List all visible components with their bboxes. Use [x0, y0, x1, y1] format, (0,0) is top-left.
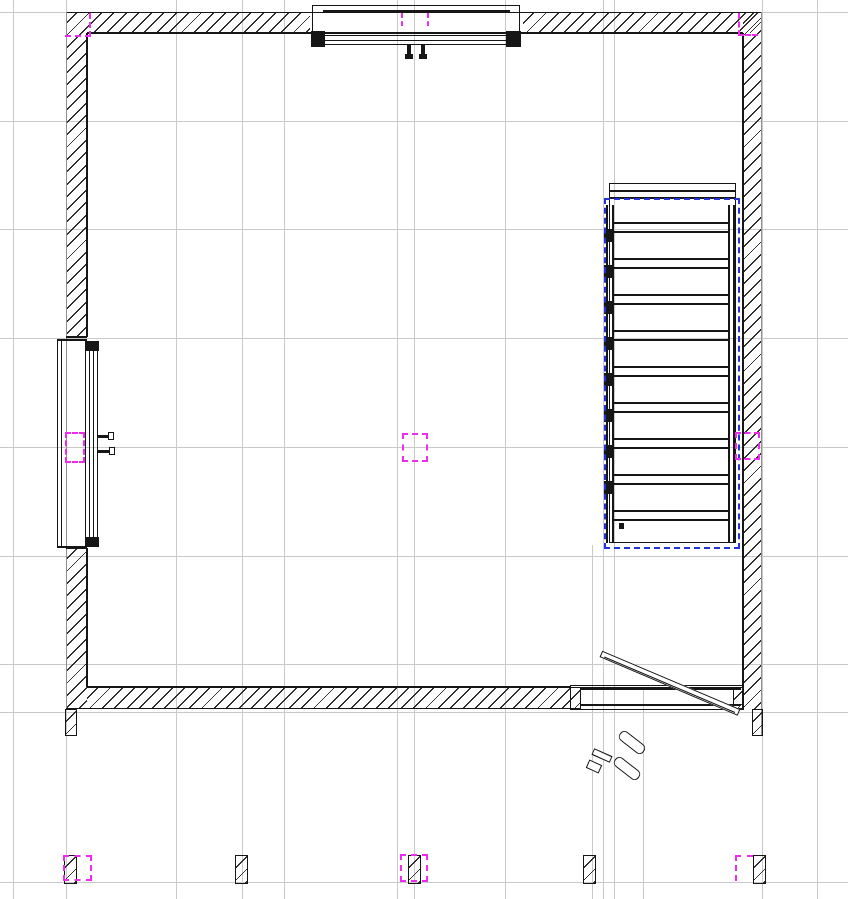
column[interactable] — [584, 856, 595, 883]
window-top-cap-left — [311, 31, 325, 47]
zone-boundary[interactable] — [604, 198, 740, 549]
window-left-handle-upper-foot — [108, 432, 114, 440]
selection-hotspot[interactable] — [427, 13, 429, 26]
wall-stub[interactable] — [753, 710, 762, 735]
door-jamb-left — [571, 688, 580, 708]
window-left-frame-line-1 — [89, 343, 90, 545]
column[interactable] — [236, 856, 247, 883]
window-left-frame-line-2 — [93, 343, 94, 545]
grid-line-horizontal — [0, 121, 848, 122]
wall-edge-right-outer — [761, 12, 762, 735]
grid-line-vertical — [505, 0, 506, 899]
wall-top-right-segment[interactable] — [523, 12, 762, 33]
selection-hotspot[interactable] — [401, 13, 403, 26]
grid-line-vertical — [242, 0, 243, 899]
wall-top-left-segment[interactable] — [66, 12, 310, 33]
wall-edge-left-inner-lower — [86, 548, 88, 687]
window-top-glass-line — [323, 10, 510, 13]
wall-right[interactable] — [743, 12, 762, 710]
wall-opening-edge-left-top — [66, 336, 87, 338]
grid-line-vertical — [176, 0, 177, 899]
grid-line-vertical — [284, 0, 285, 899]
window-left-top-connector — [57, 339, 87, 341]
selection-hotspot[interactable] — [63, 855, 92, 881]
selection-hotspot[interactable] — [65, 432, 85, 463]
selection-hotspot[interactable] — [65, 13, 91, 37]
window-top-cap-right — [506, 31, 521, 47]
window-top-handle-right-foot — [419, 54, 427, 59]
window-left-frame[interactable] — [85, 342, 98, 546]
door-handle-bar — [591, 748, 612, 763]
stairs-landing-line-1 — [610, 190, 735, 192]
window-left-handle-lower-foot — [109, 447, 115, 455]
wall-edge-bottom-inner — [87, 686, 570, 688]
door-sill-top-line — [580, 687, 741, 690]
window-top-handle-left[interactable] — [407, 45, 411, 54]
wall-edge-right-inner — [742, 33, 744, 710]
window-top-sill-midline — [314, 40, 516, 41]
grid-line-vertical-partial — [643, 688, 644, 899]
door-handle-endcap — [586, 760, 602, 774]
window-left-cap-bottom — [85, 537, 99, 547]
grid-line-horizontal — [0, 556, 848, 557]
window-left-bottom-connector — [57, 546, 87, 548]
selection-hotspot[interactable] — [400, 854, 428, 882]
column[interactable] — [754, 856, 765, 883]
cad-drawing-canvas[interactable] — [0, 0, 848, 899]
window-left-cap-top — [85, 341, 99, 351]
grid-line-vertical — [817, 0, 818, 899]
grid-line-horizontal — [0, 664, 848, 665]
grid-line-horizontal — [0, 712, 848, 713]
wall-edge-left-inner-upper — [86, 33, 88, 337]
grid-line-vertical-partial — [592, 545, 593, 899]
grid-line-vertical — [762, 0, 763, 899]
grid-line-horizontal — [0, 882, 848, 883]
selection-hotspot[interactable] — [735, 432, 760, 460]
wall-stub[interactable] — [66, 710, 76, 735]
wall-left-upper-segment[interactable] — [66, 12, 87, 337]
grid-line-vertical — [13, 0, 14, 899]
door-handle-hook-lower — [612, 755, 642, 782]
wall-bottom[interactable] — [87, 687, 570, 709]
selection-hotspot[interactable] — [735, 855, 753, 881]
grid-line-vertical — [397, 0, 398, 899]
selection-hotspot[interactable] — [738, 13, 758, 36]
window-top-handle-left-foot — [405, 54, 413, 59]
window-top-handle-right[interactable] — [421, 45, 425, 54]
selection-hotspot[interactable] — [402, 433, 428, 462]
wall-edge-bottom-outer — [66, 708, 571, 709]
door-jamb-right — [734, 688, 742, 708]
window-left-outer-bar[interactable] — [57, 340, 62, 548]
wall-edge-left-outer — [66, 12, 67, 709]
wall-left-lower-segment[interactable] — [66, 548, 87, 709]
